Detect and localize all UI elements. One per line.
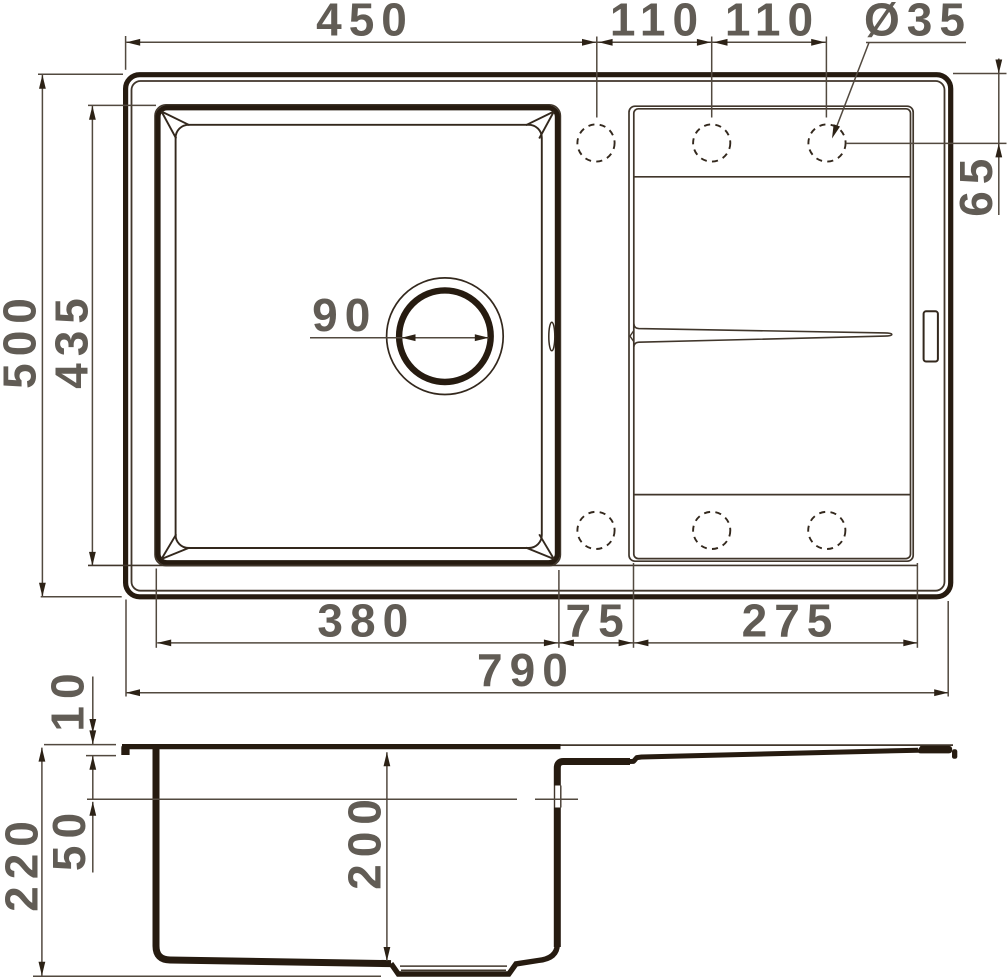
svg-text:380: 380 <box>317 594 415 646</box>
svg-text:10: 10 <box>41 666 93 731</box>
svg-text:220: 220 <box>0 814 47 912</box>
svg-text:435: 435 <box>45 291 97 389</box>
svg-text:790: 790 <box>477 644 575 696</box>
svg-text:110: 110 <box>610 0 705 45</box>
svg-text:450: 450 <box>316 0 414 45</box>
svg-text:500: 500 <box>0 291 45 389</box>
svg-text:90: 90 <box>312 289 377 341</box>
svg-text:275: 275 <box>742 594 840 646</box>
svg-text:200: 200 <box>338 792 390 890</box>
svg-text:Ø35: Ø35 <box>864 0 972 45</box>
svg-text:75: 75 <box>566 594 631 646</box>
svg-text:50: 50 <box>43 806 95 871</box>
svg-text:65: 65 <box>950 152 1002 217</box>
svg-text:110: 110 <box>725 0 820 45</box>
